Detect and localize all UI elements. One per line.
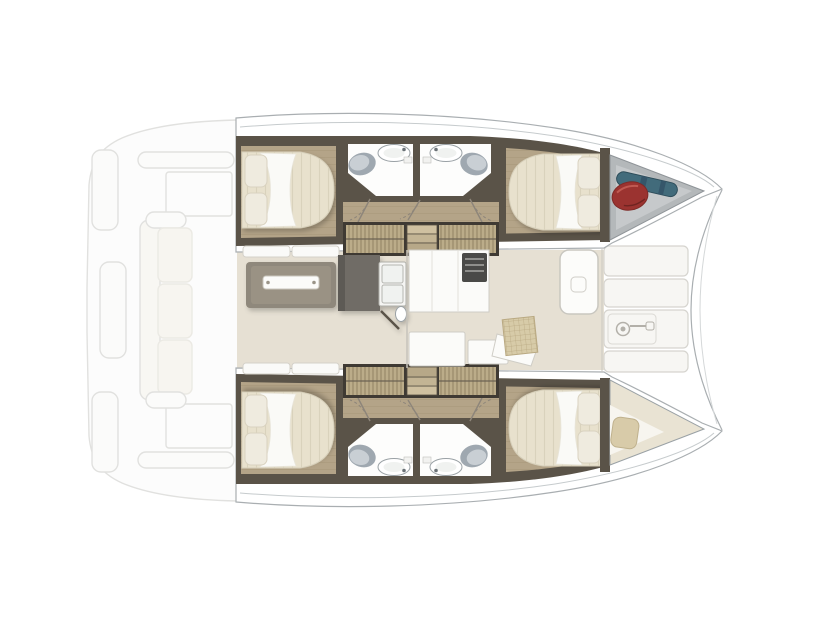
sofa-cushion xyxy=(158,340,192,394)
sink-bowl xyxy=(382,265,403,283)
sink-bowl xyxy=(382,285,403,303)
sofa-cushion xyxy=(158,284,192,338)
deck-panel xyxy=(604,351,688,372)
aft-bench xyxy=(138,152,234,168)
table-tray xyxy=(263,276,319,289)
bow-cross-beam-curve-outer xyxy=(700,196,717,424)
woven-check-mat xyxy=(502,316,538,355)
berth-pillow xyxy=(610,416,640,449)
sofa-back xyxy=(140,220,160,400)
transom-step xyxy=(92,150,118,230)
aft-bench xyxy=(138,452,234,468)
foredeck-door xyxy=(560,250,598,314)
cockpit-sofa xyxy=(140,212,192,408)
sofa-cushion xyxy=(158,228,192,282)
aft-cockpit xyxy=(87,120,237,501)
faucet xyxy=(396,307,407,322)
bench-cushion xyxy=(292,363,339,374)
sofa-armrest xyxy=(146,212,186,228)
dining-table xyxy=(246,262,336,308)
bench-cushion xyxy=(243,363,290,374)
sofa-armrest xyxy=(146,392,186,408)
transom-step xyxy=(92,392,118,472)
bench-cushion xyxy=(243,246,290,257)
catamaran-deck-plan xyxy=(0,0,828,621)
transom-step xyxy=(100,262,126,358)
deck-panel xyxy=(604,246,688,276)
stove xyxy=(462,253,487,282)
bow-cross-beam-curve xyxy=(691,190,722,430)
deck-panel xyxy=(604,279,688,307)
bench-cushion xyxy=(292,246,339,257)
deck-plan-canvas xyxy=(0,0,828,621)
